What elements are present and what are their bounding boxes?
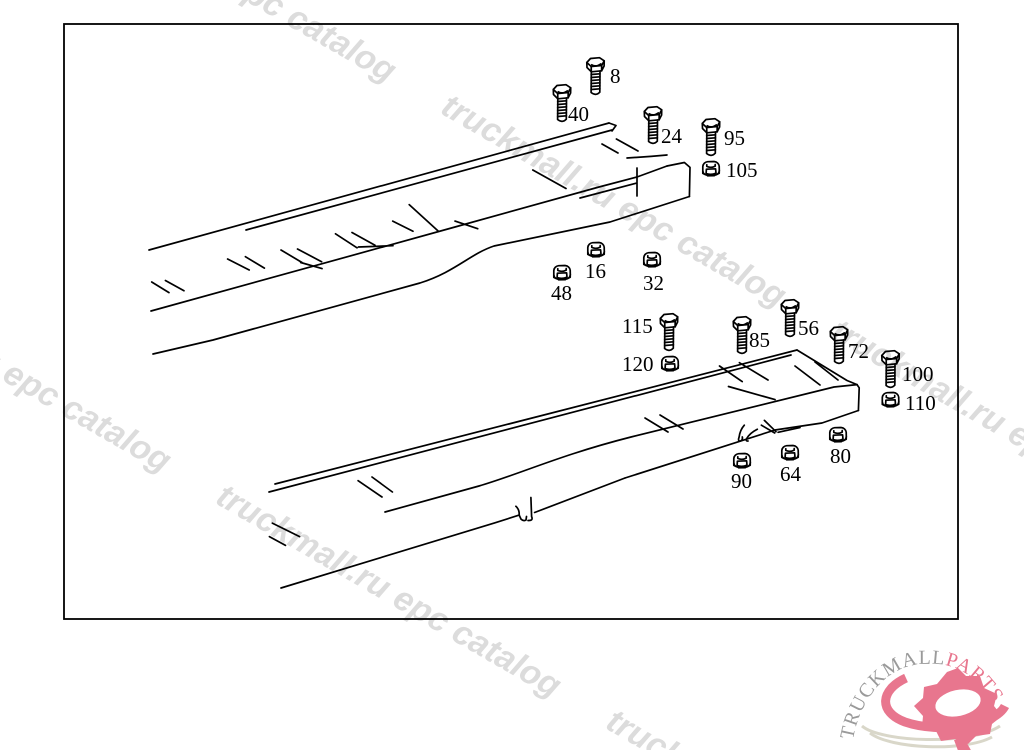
svg-text:72: 72 [848,339,869,363]
svg-text:95: 95 [724,126,745,150]
svg-text:48: 48 [551,281,572,305]
svg-text:120: 120 [622,352,654,376]
svg-text:56: 56 [798,316,819,340]
svg-text:85: 85 [749,328,770,352]
svg-text:100: 100 [902,362,934,386]
svg-text:105: 105 [726,158,758,182]
svg-text:115: 115 [622,314,653,338]
svg-text:32: 32 [643,271,664,295]
svg-text:16: 16 [585,259,606,283]
svg-text:8: 8 [610,64,621,88]
svg-text:110: 110 [905,391,936,415]
svg-text:40: 40 [568,102,589,126]
svg-text:80: 80 [830,444,851,468]
svg-text:64: 64 [780,462,802,486]
svg-text:90: 90 [731,469,752,493]
svg-text:24: 24 [661,124,683,148]
